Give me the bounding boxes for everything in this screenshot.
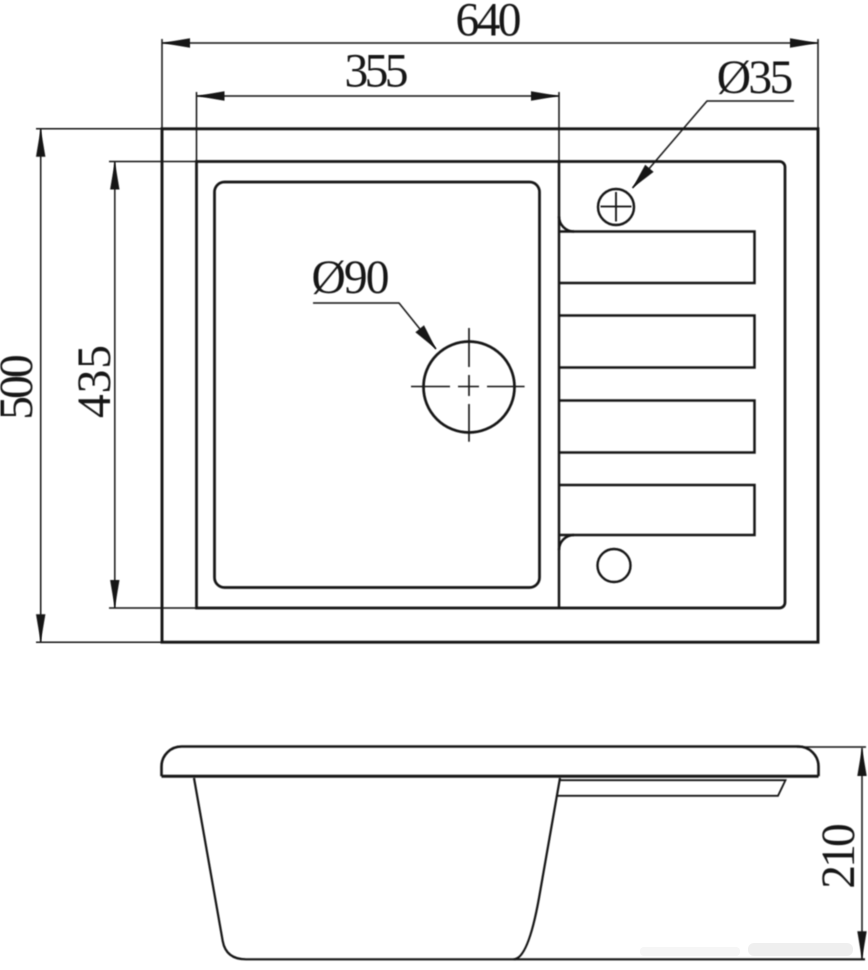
svg-text:Ø90: Ø90 bbox=[312, 252, 390, 304]
svg-text:Ø35: Ø35 bbox=[717, 52, 794, 104]
svg-text:500: 500 bbox=[0, 354, 43, 420]
svg-text:210: 210 bbox=[813, 823, 865, 889]
svg-text:640: 640 bbox=[456, 0, 522, 47]
svg-text:435: 435 bbox=[69, 345, 121, 418]
svg-text:355: 355 bbox=[345, 46, 409, 98]
